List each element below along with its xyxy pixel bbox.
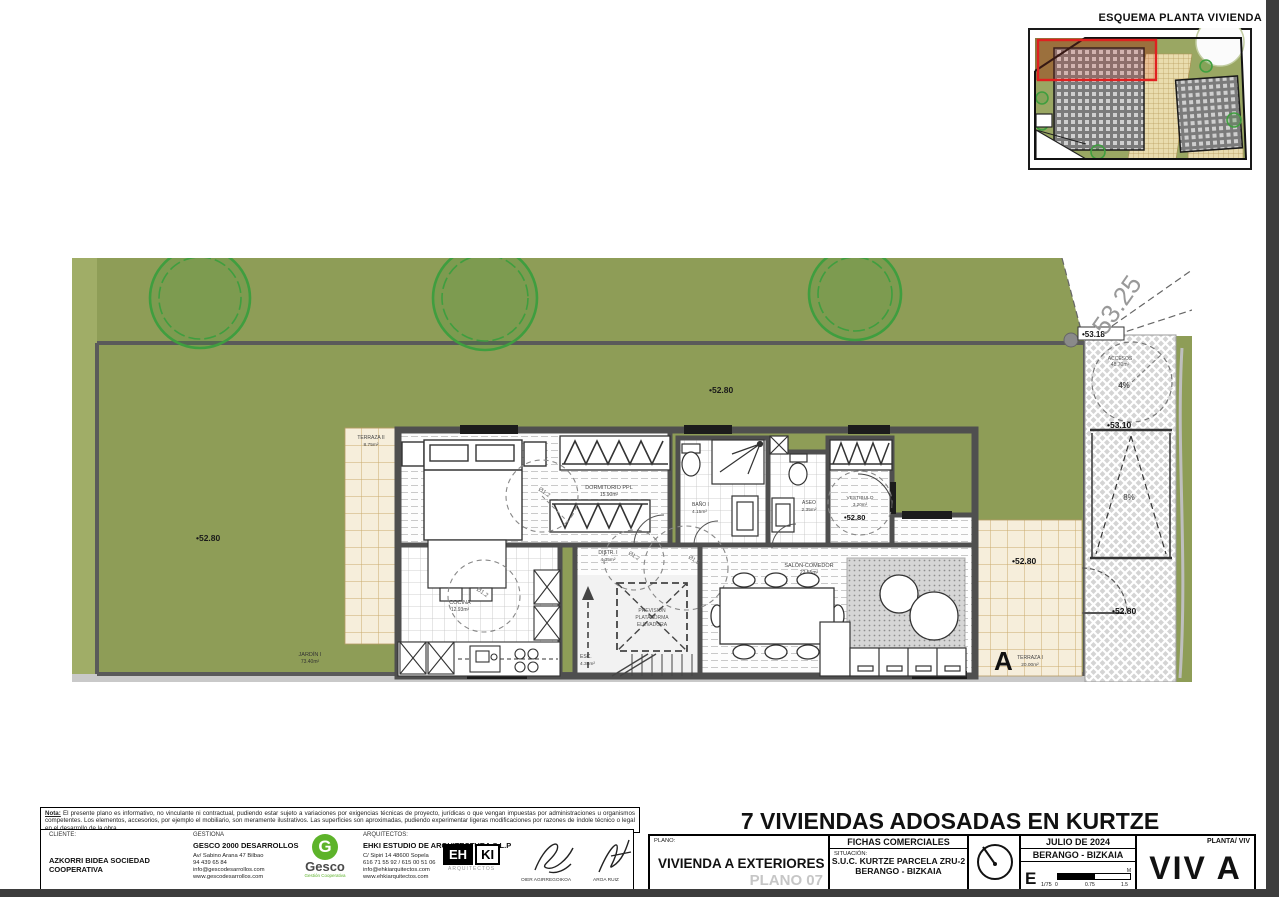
- level-marker: •52.80: [1112, 606, 1137, 616]
- gestiona-address: Av/ Sabino Arana 47 Bilbao: [193, 853, 265, 860]
- esquema-title: ESQUEMA PLANTA VIVIENDA: [1028, 12, 1262, 24]
- planta-label: PLANTA/ VIV: [1207, 838, 1250, 845]
- arquitectos-email: info@ehkiarquitectos.com: [363, 867, 436, 874]
- ehki-logo: EH KI ARQUITECTOS: [443, 844, 500, 872]
- room-area: 8.75m²: [364, 442, 379, 448]
- situacion-cell: FICHAS COMERCIALES SITUACIÓN: S.U.C. KUR…: [830, 836, 969, 891]
- page-edge: [0, 889, 1279, 897]
- scale-tick-15: 1.5: [1121, 882, 1128, 888]
- gesco-wordmark: Gesco: [293, 860, 357, 873]
- room-area: 20.00m²: [1021, 662, 1039, 668]
- scale-tick-0: 0: [1055, 882, 1058, 888]
- gesco-logo: G Gesco Gestión Cooperativa: [293, 834, 357, 878]
- gestiona-email: info@gescodesarrollos.com: [193, 867, 265, 874]
- arquitectos-web: www.ehkiarquitectos.com: [363, 874, 436, 881]
- room-area: 2.35m²: [802, 507, 817, 513]
- terraza1-floor: [975, 520, 1082, 676]
- plano-number: PLANO 07: [750, 872, 823, 889]
- situacion-label: SITUACIÓN:: [834, 851, 867, 857]
- scale-unit: M: [1127, 868, 1131, 874]
- level-marker: •52.80: [844, 513, 865, 522]
- gesco-logo-icon: G: [312, 834, 338, 860]
- slope-label: 4%: [1118, 381, 1130, 390]
- arquitectos-phone: 616 71 55 92 / 615 00 51 06: [363, 860, 436, 867]
- firm-block: CLIENTE: AZKORRI BIDEA SOCIEDAD COOPERAT…: [40, 829, 634, 891]
- scale-bar: E 1/75 0 0.75 1.5 M: [1021, 867, 1135, 891]
- fichas-label: FICHAS COMERCIALES: [830, 836, 967, 849]
- location-label: BERANGO - BIZKAIA: [1021, 849, 1135, 862]
- room-label: DORMITORIO PPL: [585, 485, 633, 491]
- level-marker: •52.80: [1012, 556, 1037, 566]
- vestibulo-wardrobe-icon: [830, 440, 892, 470]
- level-marker: •53.10: [1107, 420, 1132, 430]
- signature-icon: [527, 836, 579, 878]
- vivienda-cell: PLANTA/ VIV VIV A: [1137, 836, 1254, 891]
- signature-icon: [589, 836, 637, 878]
- gestiona-name: GESCO 2000 DESARROLLOS: [193, 841, 298, 850]
- room-label: ASEO: [802, 500, 816, 506]
- vivienda-code: VIV A: [1137, 850, 1254, 887]
- scale-e: E: [1025, 869, 1036, 889]
- level-marker: •52.80: [709, 385, 734, 395]
- room-label: SALÓN-COMEDOR: [784, 562, 833, 569]
- arquitectos-address: C/ Sipiri 14 48600 Sopela: [363, 853, 436, 860]
- date-label: JULIO DE 2024: [1021, 836, 1135, 849]
- ehki-sub-label: ARQUITECTOS: [443, 866, 500, 872]
- level-marker: •52.80: [196, 533, 221, 543]
- lift-label: PLATAFORMA: [635, 615, 669, 621]
- situacion-line2: BERANGO - BIZKAIA: [830, 866, 967, 876]
- room-area: 4.15m²: [692, 509, 707, 515]
- north-cell: [969, 836, 1021, 891]
- room-label: JARDÍN I: [299, 651, 322, 658]
- cliente-label: CLIENTE:: [49, 832, 76, 838]
- plano-label: PLANO:: [654, 838, 675, 844]
- cliente-name: AZKORRI BIDEA SOCIEDAD COOPERATIVA: [49, 856, 189, 874]
- sheet: ESQUEMA PLANTA VIVIENDA: [0, 0, 1279, 897]
- terraza2-floor: [345, 428, 398, 644]
- esquema-siteplan-graphic: [1028, 28, 1252, 170]
- room-label: VESTIBULO: [847, 495, 874, 501]
- signature-name: AROA RUIZ: [593, 878, 619, 883]
- room-label: TERRAZA I: [1017, 655, 1043, 661]
- room-label: BAÑO I: [692, 501, 709, 508]
- ehki-logo-icon: KI: [475, 844, 500, 865]
- room-area: 15.90m²: [600, 492, 619, 498]
- room-label: ESC.: [580, 654, 592, 660]
- scale-ratio: 1/75: [1041, 882, 1052, 888]
- room-label: DISTR. I: [598, 550, 617, 556]
- room-area: 4.38m²: [580, 661, 595, 667]
- arquitectos-label: ARQUITECTOS:: [363, 832, 408, 838]
- room-label: COCINA: [449, 600, 471, 606]
- gesco-tagline: Gestión Cooperativa: [293, 873, 357, 878]
- esquema-inset: [1028, 28, 1252, 175]
- slope-label: 8%: [1123, 493, 1135, 502]
- page-edge: [1266, 0, 1279, 897]
- title-block-table: PLANO: VIVIENDA A EXTERIORES PLANO 07 FI…: [648, 834, 1256, 893]
- room-area: 4.35m²: [601, 557, 616, 563]
- date-scale-cell: JULIO DE 2024 BERANGO - BIZKAIA E 1/75 0…: [1021, 836, 1137, 891]
- room-area: 3.20m²: [853, 502, 868, 507]
- floor-plan: •52.80 •52.80 JARDÍN I 73.40m² ACCESOS 4…: [72, 258, 1192, 687]
- situacion-line1: S.U.C. KURTZE PARCELA ZRU-2: [830, 856, 967, 866]
- plano-cell: PLANO: VIVIENDA A EXTERIORES PLANO 07: [650, 836, 830, 891]
- room-label: TERRAZA II: [357, 435, 384, 441]
- plano-value: VIVIENDA A EXTERIORES: [658, 856, 825, 871]
- scale-tick-075: 0.75: [1085, 882, 1095, 888]
- esquema-unit-highlight: [1038, 40, 1156, 80]
- lift-label: PREVISIÓN: [638, 607, 666, 614]
- ehki-logo-icon: EH: [443, 844, 473, 865]
- signature-name: OIER AGIRREGOIKOA: [521, 878, 571, 883]
- room-area: 12.93m²: [451, 607, 470, 613]
- lift-label: ELEVADORA: [637, 622, 668, 628]
- section-marker: A: [994, 646, 1013, 676]
- coffee-table-icon: [910, 592, 958, 640]
- room-area: 73.40m²: [301, 659, 320, 665]
- floor-plan-graphic: •52.80 •52.80 JARDÍN I 73.40m² ACCESOS 4…: [72, 258, 1192, 682]
- gestiona-label: GESTIONA: [193, 832, 224, 838]
- nota-label: Nota:: [45, 810, 61, 817]
- compass-icon: [969, 836, 1021, 887]
- room-area: 48.70m²: [1111, 362, 1130, 368]
- gestiona-web: www.gescodesarrollos.com: [193, 874, 265, 881]
- gestiona-phone: 94 439 65 84: [193, 860, 265, 867]
